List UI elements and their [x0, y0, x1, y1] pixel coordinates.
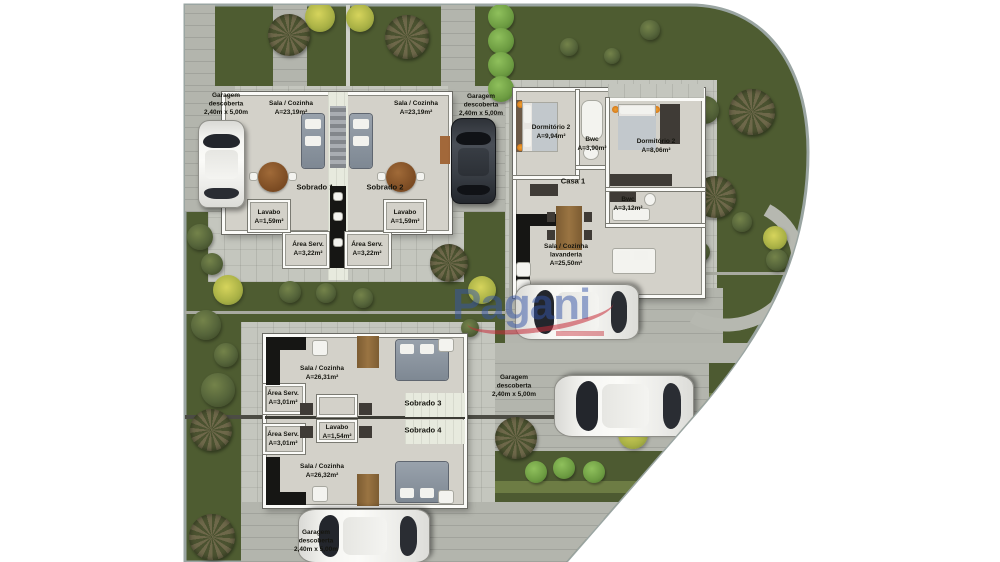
room-area: A=26,32m² [300, 471, 344, 480]
dining-table [357, 336, 379, 368]
hedge-bush [488, 4, 514, 30]
appliance [300, 426, 313, 438]
unit-label-sobrado-3: Sobrado 3 [405, 399, 442, 409]
car-roof [343, 517, 387, 556]
lavabo-room-3 [317, 395, 357, 417]
bush [525, 461, 547, 483]
room-label-sala-2: Sala / Cozinha A=23,19m² [394, 99, 438, 116]
interior-wall [606, 98, 609, 226]
watermark-red-tag [556, 331, 604, 336]
bush [201, 373, 235, 407]
appliance [333, 238, 343, 247]
bush [305, 2, 335, 32]
room-label-sala-3: Sala / Cozinha A=26,31m² [300, 364, 344, 381]
room-name: Área Serv. [267, 389, 299, 398]
car-white [554, 375, 694, 437]
room-name: Dormitório 2 [637, 137, 676, 146]
room-label-lavabo-3: Lavabo A=1,54m² [322, 423, 351, 440]
interior-wall [606, 224, 705, 227]
car-white [198, 120, 245, 208]
chair [438, 490, 454, 504]
garage-label-mid: Garagem descoberta 2,40m x 5,00m [492, 373, 536, 399]
windshield [576, 381, 598, 430]
room-name: Sala / Cozinha [300, 462, 344, 471]
unit-label-sobrado-2: Sobrado 2 [367, 183, 404, 193]
bush [560, 38, 578, 56]
palm-tree [190, 409, 232, 451]
car-dark [451, 118, 496, 204]
garage-label-line: Garagem [294, 528, 338, 537]
unit-name: Sobrado 4 [405, 426, 442, 436]
room-name: Sala / Cozinha [544, 242, 588, 251]
room-label-service-3: Área Serv. A=3,01m² [267, 389, 299, 406]
sofa-pillow [353, 136, 369, 146]
room-area: A=3,12m² [613, 204, 642, 213]
palm-tree [430, 244, 468, 282]
bush [346, 4, 374, 32]
chair [584, 230, 592, 240]
bush [279, 281, 301, 303]
chair [288, 172, 297, 181]
room-area: A=1,54m² [322, 432, 351, 441]
bush [604, 48, 620, 64]
palm-tree [729, 89, 775, 135]
palm-tree [268, 14, 310, 56]
appliance [300, 403, 313, 415]
room-name-2: lavanderia [544, 251, 588, 260]
rear-window [457, 185, 491, 196]
room-label-sala-4: Sala / Cozinha A=26,32m² [300, 462, 344, 479]
unit-name: Sobrado 1 [297, 183, 334, 193]
site-plan: Garagem descoberta 2,40m x 5,00m Garagem… [0, 0, 1000, 562]
room-area: A=1,59m² [254, 217, 283, 226]
bush [640, 20, 660, 40]
room-label-bwc-right: Bwc A=3,12m² [613, 195, 642, 212]
room-area: A=9,94m² [532, 132, 571, 141]
appliance [333, 212, 343, 221]
room-label-service-2: Área Serv. A=3,22m² [351, 240, 383, 257]
garage-label-line: descoberta [492, 382, 536, 391]
chair [377, 172, 386, 181]
room-label-bwc-top: Bwc A=3,90m² [577, 135, 606, 152]
interior-wall [576, 166, 609, 169]
garage-label-top-left: Garagem descoberta 2,40m x 5,00m [204, 91, 248, 117]
appliance [359, 426, 372, 438]
car-roof [602, 384, 649, 428]
bush [732, 212, 752, 232]
rear-window [663, 383, 681, 430]
fridge [312, 340, 328, 356]
chair [416, 172, 425, 181]
hedge-bush [488, 28, 514, 54]
rear-window [400, 516, 417, 557]
windshield [456, 132, 491, 145]
room-label-service-4: Área Serv. A=3,01m² [267, 430, 299, 447]
palm-tree [385, 15, 429, 59]
chair [547, 230, 555, 240]
unit-label-casa-1: Casa 1 [561, 177, 585, 187]
garage-label-line: 2,40m x 5,00m [459, 109, 503, 118]
chair [547, 212, 555, 222]
kitchen-counter [266, 337, 306, 350]
appliance [359, 403, 372, 415]
appliance [333, 192, 343, 201]
room-area: A=26,31m² [300, 373, 344, 382]
dresser [610, 174, 672, 186]
bush [583, 461, 605, 483]
sofa-pillow [616, 251, 630, 260]
staircase [330, 106, 346, 168]
bush [214, 343, 238, 367]
sofa-pillow [634, 251, 648, 260]
room-name: Lavabo [254, 208, 283, 217]
car-roof [205, 150, 238, 179]
room-area: A=3,01m² [267, 439, 299, 448]
sofa-pillow [420, 488, 434, 498]
rear-window [204, 188, 239, 199]
unit-label-sobrado-4: Sobrado 4 [405, 426, 442, 436]
bed-pillow [524, 105, 531, 123]
room-label-service-1: Área Serv. A=3,22m² [292, 240, 324, 257]
bathtub [581, 100, 603, 140]
unit-name: Sobrado 2 [367, 183, 404, 193]
garage-label-line: Garagem [492, 373, 536, 382]
room-area: A=23,19m² [394, 108, 438, 117]
washer [516, 262, 531, 277]
room-name: Bwc [577, 135, 606, 144]
bush [763, 226, 787, 250]
bush [201, 253, 223, 275]
room-area: A=8,06m² [637, 146, 676, 155]
sofa-pillow [400, 344, 414, 354]
room-area: A=23,19m² [269, 108, 313, 117]
toilet [644, 193, 656, 206]
room-name: Bwc [613, 195, 642, 204]
sofa-pillow [305, 119, 321, 129]
sofa-pillow [420, 344, 434, 354]
garage-label-line: 2,40m x 5,00m [492, 390, 536, 399]
unit-name: Sobrado 3 [405, 399, 442, 409]
room-name: Sala / Cozinha [269, 99, 313, 108]
room-name: Dormitório 2 [532, 123, 571, 132]
car-roof [458, 148, 490, 177]
chair [584, 212, 592, 222]
walkway-strip [441, 4, 475, 94]
garage-label-line: descoberta [459, 101, 503, 110]
garage-label-line: descoberta [294, 537, 338, 546]
bed-pillow [524, 129, 531, 147]
room-area: A=3,90m² [577, 144, 606, 153]
casa1-top-notch [608, 84, 704, 101]
garage-label-top-right: Garagem descoberta 2,40m x 5,00m [459, 92, 503, 118]
room-label-sala-1: Sala / Cozinha A=23,19m² [269, 99, 313, 116]
room-label-lavabo-2: Lavabo A=1,59m² [390, 208, 419, 225]
sofa-pillow [305, 136, 321, 146]
kitchen-counter [266, 492, 306, 505]
chair [249, 172, 258, 181]
garage-label-line: Garagem [459, 92, 503, 101]
bush [553, 457, 575, 479]
room-name: Sala / Cozinha [300, 364, 344, 373]
hall-cabinet [530, 184, 558, 196]
room-area: A=25,50m² [544, 259, 588, 268]
interior-wall [606, 188, 705, 191]
garage-label-line: 2,40m x 5,00m [294, 545, 338, 554]
dining-table [258, 162, 288, 192]
rear-window [611, 291, 627, 333]
room-area: A=3,22m² [292, 249, 324, 258]
garage-label-bottom: Garagem descoberta 2,40m x 5,00m [294, 528, 338, 554]
unit-name: Casa 1 [561, 177, 585, 187]
interior-wall [576, 90, 579, 178]
unit-label-sobrado-1: Sobrado 1 [297, 183, 334, 193]
bush [187, 224, 213, 250]
bush [213, 275, 243, 305]
walkway-strip [185, 4, 215, 98]
bush [191, 310, 221, 340]
room-label-lavabo-1: Lavabo A=1,59m² [254, 208, 283, 225]
palm-tree [495, 417, 537, 459]
room-name: Área Serv. [267, 430, 299, 439]
sofa-pillow [400, 488, 414, 498]
room-label-sala-lavanderia: Sala / Cozinha lavanderia A=25,50m² [544, 242, 588, 268]
room-name: Sala / Cozinha [394, 99, 438, 108]
fridge [312, 486, 328, 502]
windshield [203, 134, 240, 148]
hedge-bush [488, 52, 514, 78]
room-name: Lavabo [322, 423, 351, 432]
room-label-dormitorio-right: Dormitório 2 A=8,06m² [637, 137, 676, 154]
garage-label-line: 2,40m x 5,00m [204, 108, 248, 117]
room-label-dormitorio-left: Dormitório 2 A=9,94m² [532, 123, 571, 140]
bush [353, 288, 373, 308]
chair [438, 338, 454, 352]
console-cabinet [440, 136, 450, 164]
room-area: A=3,22m² [351, 249, 383, 258]
sofa-pillow [353, 119, 369, 129]
bush [316, 283, 336, 303]
room-name: Área Serv. [351, 240, 383, 249]
bed-pillow [620, 106, 654, 114]
garage-label-line: Garagem [204, 91, 248, 100]
room-name: Lavabo [390, 208, 419, 217]
dining-table [357, 474, 379, 506]
room-name: Área Serv. [292, 240, 324, 249]
room-area: A=3,01m² [267, 398, 299, 407]
room-area: A=1,59m² [390, 217, 419, 226]
bush [766, 249, 788, 271]
garage-label-line: descoberta [204, 100, 248, 109]
palm-tree [189, 514, 235, 560]
